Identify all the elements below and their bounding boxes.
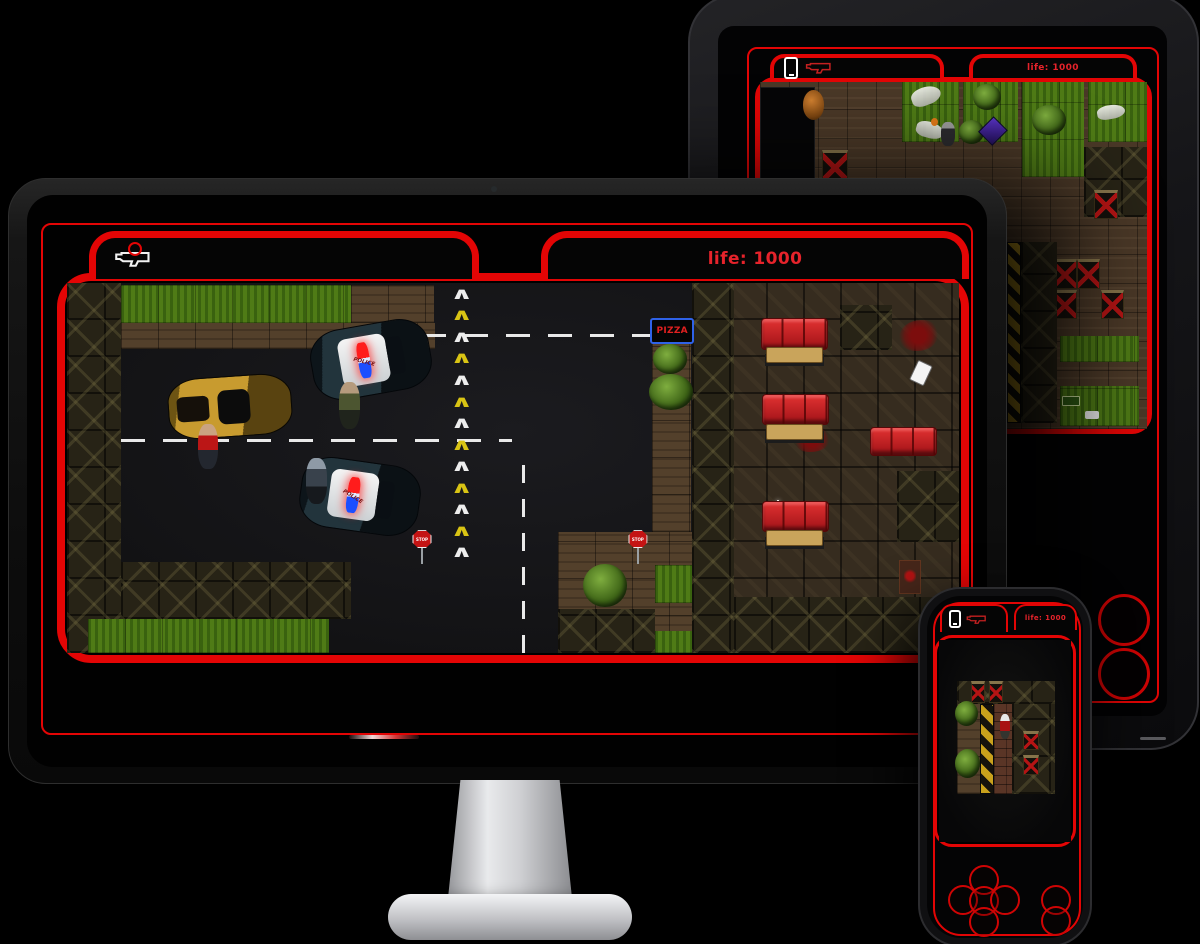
phone-game-viewport xyxy=(939,640,1071,842)
phone-icon xyxy=(949,610,961,628)
bush xyxy=(653,344,687,374)
monitor-chin-light xyxy=(349,735,419,739)
crates xyxy=(558,609,654,653)
smartphone-device: life: 1000 xyxy=(918,587,1092,944)
player xyxy=(941,122,955,146)
crates xyxy=(897,471,959,542)
chevrons: ∧∧∧∧∧∧∧∧∧∧∧∧∧ xyxy=(450,285,473,563)
bush xyxy=(973,84,1001,110)
couch xyxy=(762,501,829,533)
ammo-ring-icon xyxy=(128,242,142,256)
redx xyxy=(989,681,1003,702)
dash-v xyxy=(522,458,525,653)
monitor-game-viewport: ∧∧∧∧∧∧∧∧∧∧∧∧∧PIZZAPOLICEPOLICESTOPSTOP xyxy=(67,283,959,653)
action-button-b[interactable] xyxy=(1041,906,1071,936)
hazard xyxy=(980,704,994,793)
grass xyxy=(655,631,692,653)
ped-red xyxy=(198,424,218,470)
orange-dot xyxy=(931,118,938,126)
crates xyxy=(840,305,892,351)
gold-car xyxy=(166,372,294,442)
life-value: life: 1000 xyxy=(1025,614,1066,622)
couch xyxy=(761,318,828,350)
tablet-action-button-a[interactable] xyxy=(1098,594,1150,646)
redx xyxy=(971,681,985,702)
stop-sign: STOP xyxy=(628,530,648,564)
shotgun-icon xyxy=(805,61,831,75)
redx xyxy=(1077,259,1101,289)
phone-icon xyxy=(784,57,798,79)
bush xyxy=(955,701,978,726)
grass xyxy=(88,619,329,653)
desktop-monitor: ∧∧∧∧∧∧∧∧∧∧∧∧∧PIZZAPOLICEPOLICESTOPSTOP l… xyxy=(8,178,1007,784)
crate-col xyxy=(692,283,734,653)
shotgun-icon xyxy=(114,249,150,269)
crates xyxy=(121,562,351,619)
player-red xyxy=(1000,714,1011,739)
life-value: life: 1000 xyxy=(708,249,803,269)
couch xyxy=(762,394,829,426)
webcam-icon xyxy=(491,186,497,192)
tablet-hud-weapon-tab xyxy=(770,54,944,78)
monitor-stand-base xyxy=(388,894,632,940)
monitor-stand-neck xyxy=(448,780,572,898)
monitor-hud-weapon-tab xyxy=(89,231,479,279)
life-value: life: 1000 xyxy=(1027,63,1079,73)
grass xyxy=(1060,336,1139,362)
bush xyxy=(955,749,980,778)
pizza-sign: PIZZA xyxy=(650,318,694,344)
door xyxy=(899,560,920,594)
redx xyxy=(1101,290,1125,320)
redx xyxy=(1094,190,1118,220)
hazard xyxy=(1007,242,1021,423)
phone-hud-weapon-tab xyxy=(940,604,1008,632)
dpad-down-button[interactable] xyxy=(969,907,999,937)
redx xyxy=(1023,731,1039,750)
crate-col xyxy=(67,283,121,653)
sign-green xyxy=(1062,396,1080,406)
table xyxy=(766,347,823,363)
stage: life: 1000 ∧∧∧∧∧∧∧∧∧∧∧∧∧PIZZAPOLICEPOLIC… xyxy=(0,0,1200,944)
grass xyxy=(121,285,351,323)
barrel xyxy=(803,90,825,120)
ped-swat xyxy=(306,458,327,504)
redx xyxy=(1023,755,1039,774)
monitor-hud-life-tab: life: 1000 xyxy=(541,231,969,279)
bush xyxy=(649,374,693,410)
phone-hud-life-tab: life: 1000 xyxy=(1014,604,1077,630)
crate-col xyxy=(1021,242,1057,423)
tablet-hud-life-tab: life: 1000 xyxy=(969,54,1137,78)
shotgun-icon xyxy=(966,614,986,625)
bush xyxy=(1032,105,1066,135)
grass xyxy=(655,565,692,603)
table xyxy=(766,424,823,440)
ped-olive xyxy=(339,382,360,429)
table xyxy=(766,530,823,546)
white-item xyxy=(1085,411,1099,419)
tablet-action-button-b[interactable] xyxy=(1098,648,1150,700)
couch xyxy=(870,427,937,457)
home-indicator xyxy=(1140,737,1166,740)
